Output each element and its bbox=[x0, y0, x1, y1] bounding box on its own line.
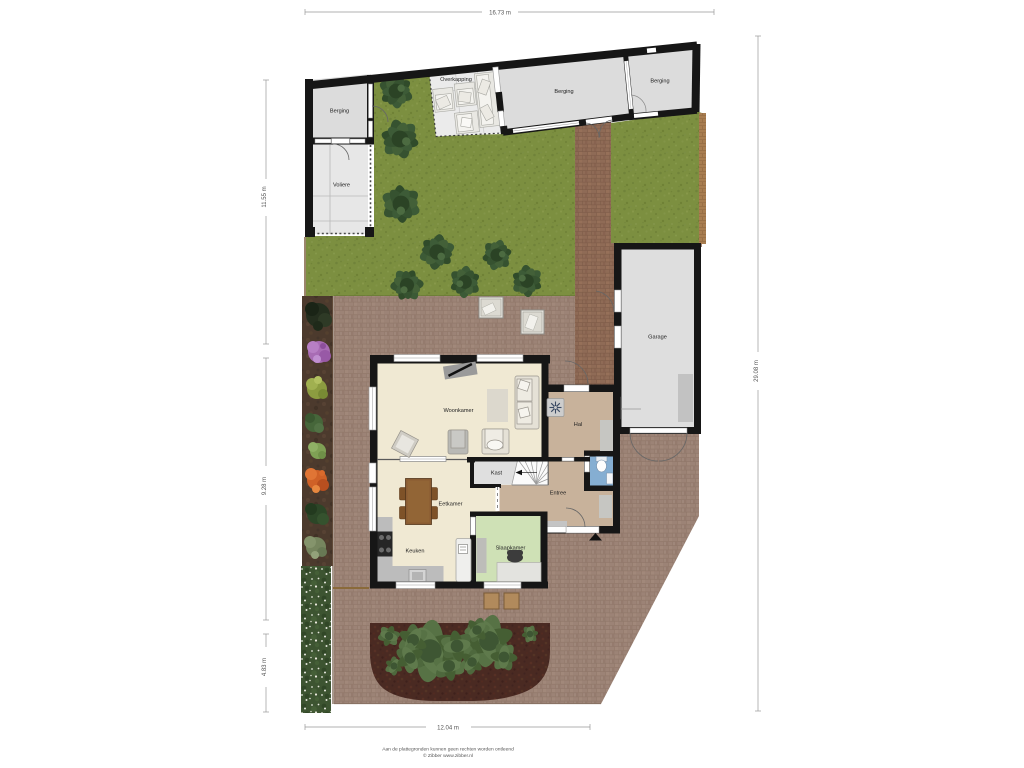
svg-text:Hal: Hal bbox=[574, 422, 582, 428]
svg-text:Entree: Entree bbox=[550, 491, 566, 497]
svg-text:Overkapping: Overkapping bbox=[440, 77, 472, 83]
svg-text:29.08 m: 29.08 m bbox=[754, 360, 760, 382]
svg-text:Berging: Berging bbox=[650, 79, 669, 85]
svg-text:Voliere: Voliere bbox=[333, 183, 350, 189]
svg-text:11.55 m: 11.55 m bbox=[262, 186, 268, 207]
svg-text:12.04 m: 12.04 m bbox=[437, 726, 459, 732]
svg-text:4.83 m: 4.83 m bbox=[262, 658, 268, 676]
svg-text:Berging: Berging bbox=[554, 89, 573, 95]
svg-text:Slaapkamer: Slaapkamer bbox=[496, 546, 526, 552]
svg-text:Eetkamer: Eetkamer bbox=[439, 502, 463, 508]
svg-text:Aan de plattegronden kunnen ge: Aan de plattegronden kunnen geen rechten… bbox=[382, 747, 514, 753]
svg-text:9.28 m: 9.28 m bbox=[262, 477, 268, 495]
svg-text:16.73 m: 16.73 m bbox=[489, 11, 511, 17]
svg-text:Keuken: Keuken bbox=[406, 549, 425, 555]
svg-text:Garage: Garage bbox=[648, 335, 667, 341]
svg-text:Kast: Kast bbox=[491, 471, 503, 477]
svg-text:© Zibber www.zibber.nl: © Zibber www.zibber.nl bbox=[423, 752, 473, 759]
svg-text:Woonkamer: Woonkamer bbox=[443, 408, 473, 414]
svg-text:Berging: Berging bbox=[330, 109, 349, 115]
